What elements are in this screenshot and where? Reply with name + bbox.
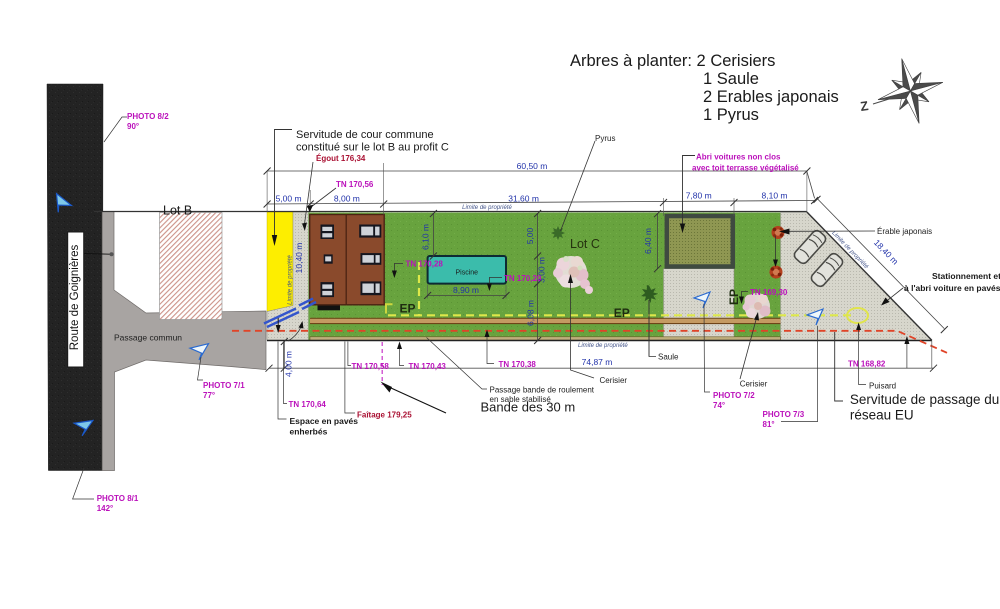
svg-text:Limite de propriété: Limite de propriété	[578, 343, 628, 349]
svg-text:TN 170,56: TN 170,56	[336, 180, 374, 189]
svg-text:PHOTO 8/1: PHOTO 8/1	[97, 494, 139, 503]
svg-text:Servitude de passage du: Servitude de passage du	[850, 392, 999, 407]
svg-text:à l'abri voiture en pavés enhe: à l'abri voiture en pavés enherbés	[904, 283, 1000, 293]
svg-text:Abri voitures non clos: Abri voitures non clos	[696, 153, 781, 162]
svg-text:77°: 77°	[203, 391, 215, 400]
svg-text:EP: EP	[727, 289, 741, 305]
svg-text:EP: EP	[614, 306, 630, 320]
svg-text:Pyrus: Pyrus	[595, 134, 615, 143]
svg-text:Limite de propriété: Limite de propriété	[288, 254, 294, 304]
svg-text:enherbés: enherbés	[290, 427, 328, 437]
svg-text:PHOTO 8/2: PHOTO 8/2	[127, 112, 169, 121]
svg-text:2 Erables japonais: 2 Erables japonais	[703, 88, 839, 106]
svg-text:1 Pyrus: 1 Pyrus	[703, 106, 759, 124]
svg-text:8,10 m: 8,10 m	[762, 191, 788, 201]
svg-text:Saule: Saule	[658, 353, 679, 362]
svg-text:6,08 m: 6,08 m	[526, 300, 536, 326]
svg-text:TN 170,64: TN 170,64	[289, 400, 327, 409]
svg-text:constitué sur le lot B au prof: constitué sur le lot B au profit C	[296, 142, 449, 154]
svg-text:6,10 m: 6,10 m	[421, 224, 431, 250]
svg-text:Route de Goignières: Route de Goignières	[69, 245, 81, 351]
svg-text:90°: 90°	[127, 122, 139, 131]
svg-text:Passage commun: Passage commun	[114, 333, 182, 343]
svg-text:8,00 m: 8,00 m	[334, 194, 360, 204]
svg-text:60,50 m: 60,50 m	[517, 161, 548, 171]
svg-text:PHOTO 7/1: PHOTO 7/1	[203, 381, 245, 390]
svg-text:PHOTO 7/2: PHOTO 7/2	[713, 391, 755, 400]
svg-text:5,00: 5,00	[525, 227, 535, 244]
svg-text:EP: EP	[400, 302, 416, 316]
svg-text:5,00 m: 5,00 m	[276, 194, 302, 204]
svg-text:Espace en pavés: Espace en pavés	[290, 416, 359, 426]
svg-text:Cerisier: Cerisier	[740, 380, 768, 389]
svg-text:Arbres à planter: 2 Cerisiers: Arbres à planter: 2 Cerisiers	[570, 52, 775, 70]
svg-text:Puisard: Puisard	[869, 382, 896, 391]
svg-text:142°: 142°	[97, 504, 114, 513]
svg-text:7,80 m: 7,80 m	[686, 191, 712, 201]
svg-text:1 Saule: 1 Saule	[703, 70, 759, 88]
svg-text:8,90 m: 8,90 m	[453, 285, 479, 295]
svg-text:81°: 81°	[763, 420, 775, 429]
svg-text:TN 170,28: TN 170,28	[406, 260, 444, 269]
svg-text:10,40 m: 10,40 m	[294, 243, 304, 274]
svg-text:TN 170,58: TN 170,58	[352, 362, 390, 371]
svg-text:31,60 m: 31,60 m	[508, 194, 539, 204]
svg-text:Bande des 30 m: Bande des 30 m	[481, 400, 576, 415]
svg-text:Piscine: Piscine	[456, 269, 479, 276]
svg-text:Faîtage 179,25: Faîtage 179,25	[357, 411, 412, 420]
svg-text:PHOTO 7/3: PHOTO 7/3	[763, 410, 805, 419]
svg-text:74,87 m: 74,87 m	[582, 357, 613, 367]
svg-text:74°: 74°	[713, 401, 725, 410]
svg-text:Lot B: Lot B	[163, 204, 192, 218]
svg-text:TN 170,20: TN 170,20	[504, 274, 542, 283]
svg-text:avec toit terrasse végétalisé: avec toit terrasse végétalisé	[692, 164, 799, 173]
svg-text:Stationnement et accès: Stationnement et accès	[932, 271, 1000, 281]
svg-text:Égout 176,34: Égout 176,34	[316, 154, 366, 163]
svg-text:TN 170,38: TN 170,38	[499, 360, 537, 369]
svg-text:6,40 m: 6,40 m	[643, 228, 653, 254]
svg-text:Passage bande de roulement: Passage bande de roulement	[490, 386, 595, 395]
svg-text:Limite de propriété: Limite de propriété	[462, 205, 512, 211]
svg-text:TN 169,30: TN 169,30	[750, 288, 788, 297]
svg-text:Cerisier: Cerisier	[600, 376, 628, 385]
svg-text:Érable japonais: Érable japonais	[877, 227, 932, 236]
svg-text:4,00 m: 4,00 m	[284, 351, 294, 377]
svg-text:TN 170,43: TN 170,43	[409, 362, 447, 371]
svg-text:réseau EU: réseau EU	[850, 408, 914, 423]
svg-text:Lot C: Lot C	[570, 237, 600, 251]
svg-text:TN 168,82: TN 168,82	[848, 360, 886, 369]
svg-text:Servitude de cour commune: Servitude de cour commune	[296, 129, 434, 141]
